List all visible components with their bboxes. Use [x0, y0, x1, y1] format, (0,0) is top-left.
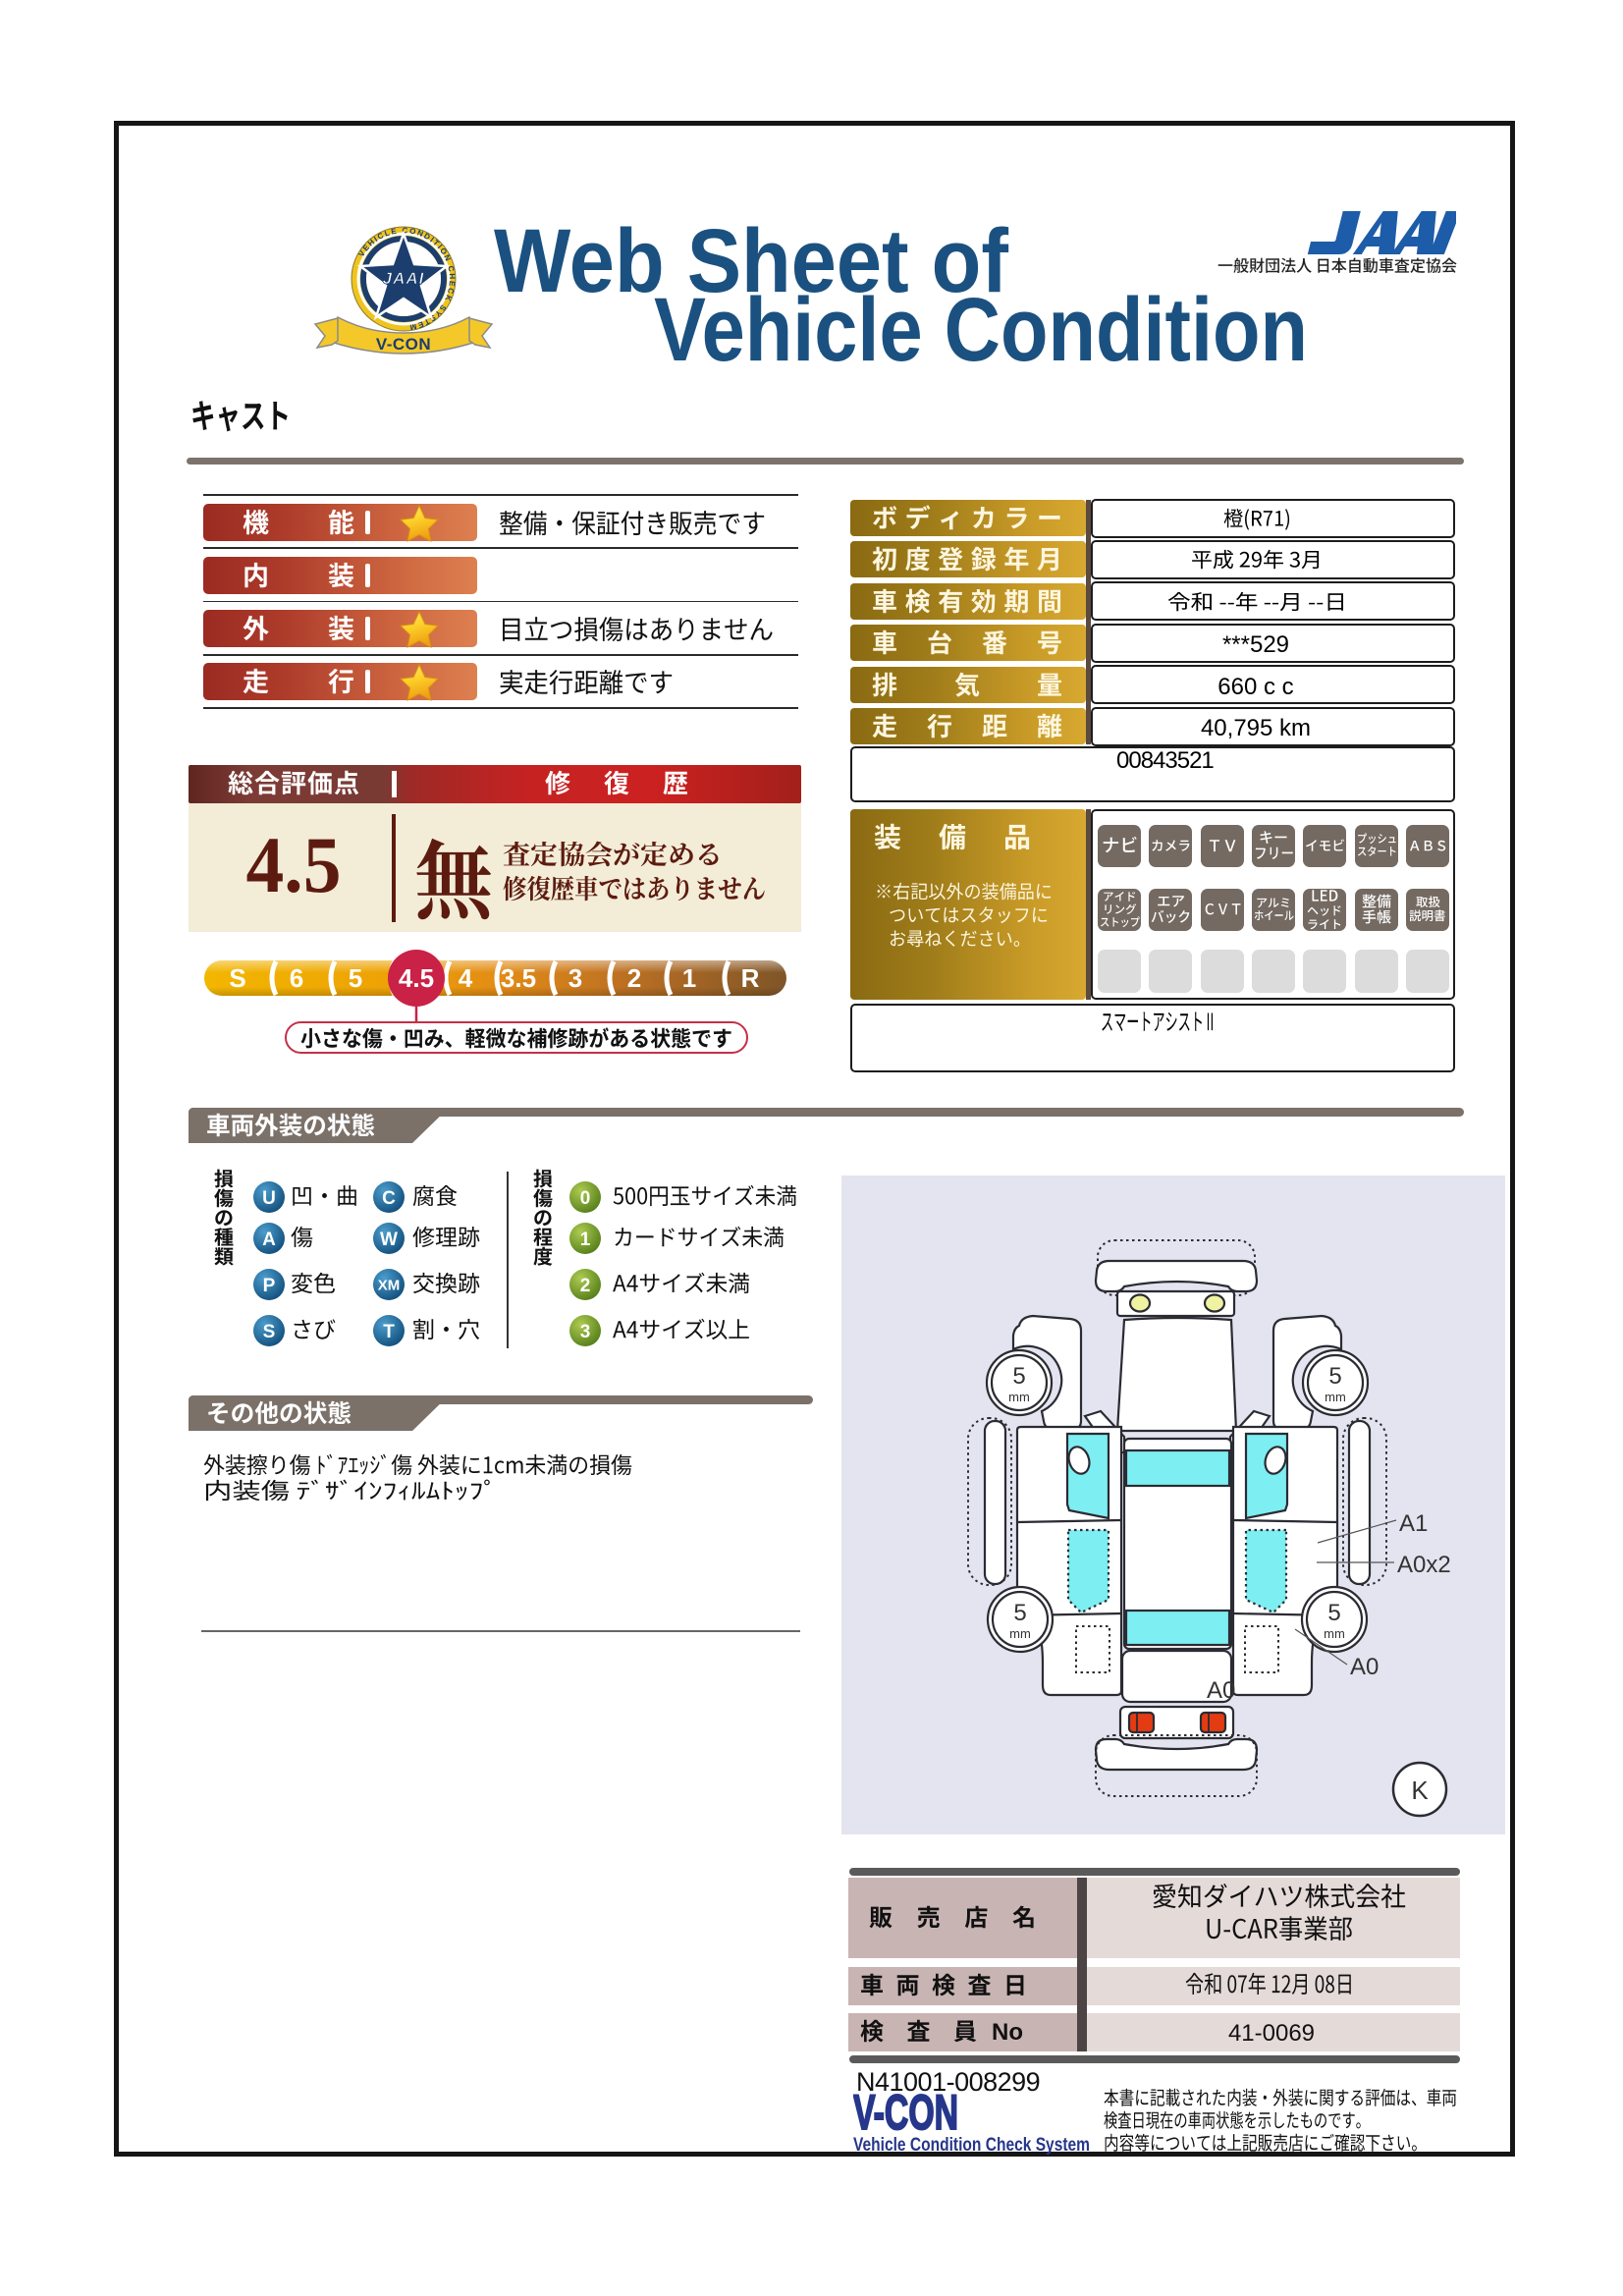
svg-text:V-CON: V-CON	[853, 2090, 958, 2140]
svg-text:5: 5	[349, 963, 362, 993]
svg-text:mm: mm	[1324, 1626, 1345, 1641]
svg-text:A0: A0	[1350, 1654, 1379, 1680]
svg-text:A: A	[262, 1230, 276, 1250]
svg-text:JAAI: JAAI	[383, 269, 425, 288]
svg-text:2: 2	[627, 963, 641, 993]
svg-text:mm: mm	[1325, 1390, 1346, 1404]
svg-text:4.5: 4.5	[399, 963, 434, 993]
svg-text:mm: mm	[1008, 1390, 1030, 1404]
svg-text:3: 3	[568, 963, 582, 993]
svg-text:3: 3	[580, 1322, 591, 1342]
svg-text:T: T	[383, 1322, 395, 1342]
svg-text:6: 6	[290, 963, 303, 993]
svg-text:V-CON: V-CON	[376, 335, 431, 354]
svg-text:3.5: 3.5	[501, 963, 536, 993]
svg-text:5: 5	[1013, 1600, 1026, 1626]
svg-text:U: U	[262, 1188, 276, 1209]
svg-text:5: 5	[1012, 1363, 1025, 1390]
svg-text:5: 5	[1328, 1363, 1341, 1390]
svg-text:S: S	[229, 963, 245, 993]
svg-text:A1: A1	[1399, 1510, 1428, 1537]
svg-text:C: C	[382, 1188, 396, 1209]
svg-text:1: 1	[580, 1230, 591, 1250]
svg-text:0: 0	[580, 1188, 591, 1209]
svg-text:W: W	[380, 1230, 398, 1250]
svg-text:A0x2: A0x2	[1397, 1552, 1451, 1578]
svg-text:XM: XM	[378, 1277, 401, 1293]
svg-text:S: S	[263, 1322, 276, 1342]
svg-text:4: 4	[459, 963, 473, 993]
svg-text:4.5: 4.5	[246, 820, 342, 909]
svg-text:5: 5	[1327, 1600, 1340, 1626]
svg-text:K: K	[1411, 1776, 1429, 1805]
svg-text:2: 2	[580, 1276, 591, 1296]
svg-text:Vehicle Condition: Vehicle Condition	[654, 280, 1308, 373]
svg-text:Vehicle Condition Check System: Vehicle Condition Check System	[853, 2135, 1090, 2156]
svg-text:P: P	[263, 1276, 276, 1296]
svg-text:mm: mm	[1009, 1626, 1031, 1641]
svg-text:A0: A0	[1207, 1677, 1235, 1704]
svg-text:R: R	[741, 963, 760, 993]
svg-text:1: 1	[682, 963, 696, 993]
